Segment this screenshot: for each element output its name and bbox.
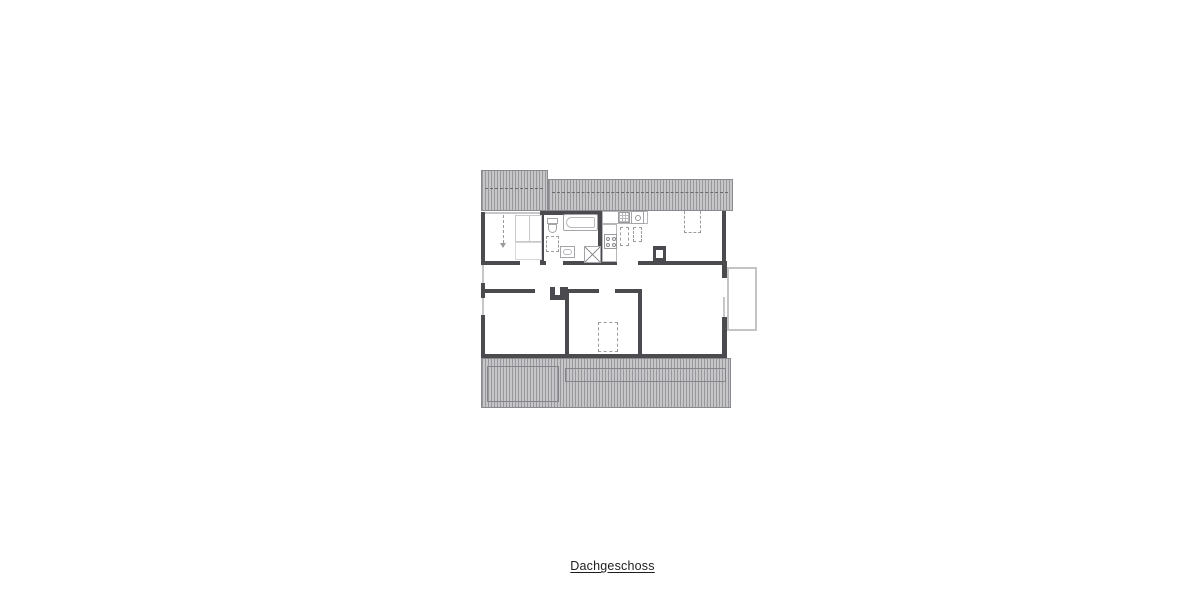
stove-burner [606, 237, 610, 241]
bathtub-basin [566, 217, 595, 228]
wardrobe-lower [515, 242, 542, 260]
window-left-upper [482, 262, 484, 283]
wall-mid-left [481, 261, 520, 265]
washbasin [560, 246, 575, 258]
bath-clearance-outline [546, 236, 559, 252]
window-left-lower [482, 298, 484, 315]
stove-burner [612, 243, 616, 247]
window-top-left-room [485, 212, 540, 214]
roof-hatch-top-right [548, 179, 733, 211]
wardrobe [515, 215, 542, 242]
stove-burner [612, 237, 616, 241]
plan-title: Dachgeschoss [486, 559, 739, 573]
wall-room-divider-left [565, 291, 569, 355]
washbasin-bowl [563, 249, 572, 255]
roof-plane-outline [565, 368, 726, 382]
kitchen-stove [604, 234, 617, 249]
wardrobe-divider [529, 216, 530, 241]
drain-symbol [500, 243, 506, 248]
stove-burner [606, 243, 610, 247]
roof-ridge-line [485, 188, 543, 189]
wall-mid-living [638, 261, 727, 265]
shower-x-icon [585, 247, 600, 262]
wall-left [481, 212, 485, 262]
wall-right [722, 211, 726, 262]
chimney-corridor-flue [555, 287, 560, 295]
kitchen-sink [618, 212, 630, 223]
kitchen-appliance-dial [635, 215, 641, 221]
wall-bottom [481, 354, 727, 358]
chimney-living-flue [656, 250, 663, 258]
balcony-door [723, 297, 725, 317]
wall-corridor-mid [568, 289, 599, 293]
kitchen-appliance [631, 211, 644, 224]
balcony [727, 267, 757, 331]
bathtub [563, 214, 598, 231]
floor-plan [480, 170, 760, 415]
roof-plane-outline [487, 366, 559, 402]
living-furniture-outline [684, 211, 701, 233]
roof-ridge-line [552, 192, 728, 193]
roof-drain-line [503, 215, 504, 243]
wall-left [481, 315, 485, 358]
kitchen-clearance-outline [633, 227, 642, 242]
bed-outline [598, 322, 618, 352]
roof-hatch-top-left [481, 170, 548, 211]
wc-bowl [548, 224, 557, 233]
wall-corridor-left [481, 289, 535, 293]
wall-room-divider-right [638, 289, 642, 355]
kitchen-clearance-outline [620, 227, 629, 246]
shower [584, 246, 601, 263]
